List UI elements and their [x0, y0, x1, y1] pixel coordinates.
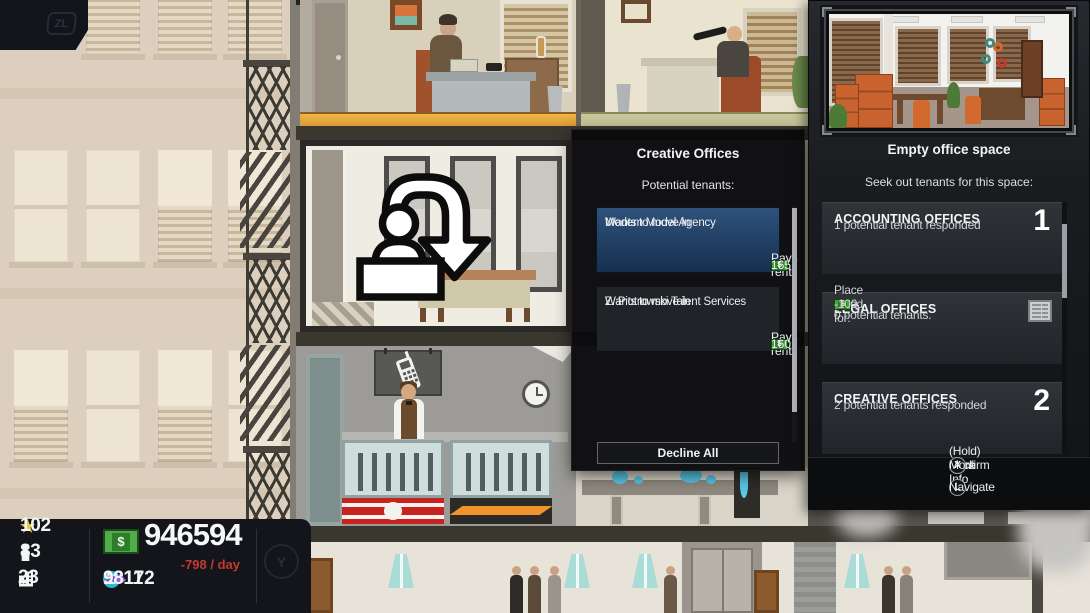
newspaper-ad-icon: [1028, 300, 1052, 322]
wall-art: [621, 0, 651, 23]
desk: [979, 88, 1025, 120]
fire-escape-lattice: [246, 452, 293, 520]
rent-value: 165: [771, 258, 791, 272]
tall-tank: [734, 468, 760, 518]
lobby-person: [528, 575, 541, 613]
wall-sconce: [564, 554, 590, 588]
elevator-doors: [691, 548, 753, 613]
game-screen: Creative Offices Potential tenants: Mode…: [0, 0, 1090, 613]
textured-wall: [794, 542, 836, 613]
desk-body: [647, 66, 719, 114]
counter-brand-red: [342, 498, 444, 524]
lobby-scene: [296, 542, 1090, 613]
water-splash: [634, 476, 643, 484]
wall-decor-ring: [985, 38, 995, 48]
office-type-description: 2 potential tenants responded: [834, 398, 986, 412]
store-door: [306, 354, 344, 526]
desk-leg: [897, 100, 903, 124]
buildings-value: 23: [18, 567, 39, 589]
desk-leg: [937, 100, 943, 124]
desk-leg: [506, 308, 512, 322]
worker-head: [727, 26, 742, 42]
facade-window: [14, 150, 68, 262]
plant: [792, 56, 808, 108]
responded-count: 2: [1033, 384, 1050, 418]
desk-leg: [524, 308, 530, 322]
typewriter: [450, 59, 478, 72]
plant: [947, 82, 960, 108]
office-door: [581, 0, 605, 118]
money-balance: 946594: [144, 517, 241, 553]
trash-can: [615, 84, 632, 114]
water-splash: [680, 468, 702, 483]
lobby-person: [900, 575, 913, 613]
move-in-tenant-icon: [348, 162, 498, 312]
fire-escape-lattice: [246, 66, 293, 150]
display-case: [342, 440, 444, 498]
lobby-door: [754, 570, 779, 613]
drafting-desk: [641, 58, 725, 66]
lobby-door: [308, 558, 333, 613]
facade-window: [86, 350, 140, 462]
office-scene-draftsman: [576, 0, 808, 128]
water-splash: [706, 475, 716, 484]
hint-label: Navigate: [949, 480, 995, 494]
facade-window: [86, 150, 140, 262]
bottle: [536, 36, 546, 58]
decline-all-button[interactable]: Decline All: [597, 442, 779, 464]
elevator: [682, 542, 762, 613]
ad-cost: -100: [834, 297, 857, 311]
aquarium-shop-scene: [576, 468, 808, 526]
empty-office-space-floor[interactable]: [300, 140, 572, 332]
divider: [89, 529, 90, 603]
room-window: [928, 512, 984, 524]
facade-window: [86, 0, 140, 54]
office-type-creative[interactable]: CREATIVE OFFICES 2 2 potential tenants r…: [822, 382, 1062, 454]
clerk-vest: [401, 399, 417, 439]
clerk-head: [401, 384, 416, 400]
lobby-person: [510, 575, 523, 613]
panel-title: Creative Offices: [572, 146, 804, 161]
facade-window: [158, 150, 212, 262]
water-splash: [612, 470, 628, 484]
wall-decor-ring: [981, 54, 991, 64]
office-type-accounting[interactable]: ACCOUNTING OFFICES 1 1 potential tenant …: [822, 202, 1062, 274]
floor-slab: [296, 526, 1090, 542]
worker-body: [717, 41, 749, 77]
wall-clock: [522, 380, 550, 408]
y-button-hint[interactable]: Y: [264, 544, 299, 579]
stats-hud: ★ 102 83 23 $ 946594 -798 / day: [0, 519, 311, 613]
tenant-list-panel: Creative Offices Potential tenants: Mode…: [572, 130, 804, 470]
space-panel-title: Empty office space: [808, 142, 1090, 157]
phone-store-scene: [296, 346, 576, 526]
ceiling-light: [1015, 16, 1045, 23]
wall-sconce: [632, 554, 658, 588]
divider: [256, 529, 257, 603]
counter-brand-bolt: [450, 498, 552, 524]
facade-window: [14, 350, 68, 462]
rent-value: 160: [771, 337, 791, 351]
desk: [426, 72, 536, 81]
office-door: [1021, 40, 1043, 98]
office-type-description: 1 potential tenant responded: [834, 218, 981, 232]
space-preview-frame: [824, 9, 1074, 133]
controller-hints-bar: A Confirm B Back X (Hold) More Info L Na…: [808, 458, 1090, 510]
counter-leg: [610, 495, 623, 526]
facade-window: [158, 350, 212, 462]
display-case: [450, 440, 552, 498]
fire-escape-stairs: [240, 152, 296, 248]
office-door: [312, 0, 348, 118]
top-left-hud: ZL: [0, 0, 88, 50]
telephone: [486, 63, 502, 71]
zl-shoulder-button[interactable]: ZL: [46, 12, 77, 35]
lobby-person: [882, 575, 895, 613]
scrollbar-thumb[interactable]: [1062, 224, 1067, 298]
wall-sconce: [388, 554, 414, 588]
facade-window: [228, 0, 282, 54]
bow-tie: [406, 401, 412, 405]
tenant-status: Wants to move in: [605, 294, 690, 311]
interior-wall: [312, 150, 346, 326]
fire-escape-lattice: [246, 259, 293, 343]
wall-decor-ring: [997, 58, 1007, 68]
facade-window: [158, 0, 212, 54]
money-icon-large: $: [103, 529, 139, 554]
space-panel-subtitle: Seek out tenants for this space:: [808, 175, 1090, 189]
lobby-person: [664, 575, 677, 613]
desk-lamp: [693, 26, 728, 41]
counter-leg: [698, 495, 711, 526]
hallway-strip: [300, 0, 312, 128]
population-value: 83: [20, 541, 41, 563]
office-type-legal[interactable]: LEGAL OFFICES 0 potential tenants. Place…: [822, 292, 1062, 364]
ceiling-light: [951, 16, 983, 23]
wall-art: [390, 0, 422, 30]
office-chair: [965, 96, 981, 124]
scrollbar-thumb[interactable]: [792, 208, 797, 412]
wall-sconce: [844, 554, 870, 588]
store-clerk: [392, 384, 426, 442]
responded-count: 1: [1033, 204, 1050, 238]
panel-subtitle: Potential tenants:: [572, 178, 804, 192]
office-scene-secretary: [300, 0, 576, 128]
empty-office-preview-art: [829, 14, 1069, 128]
worker-hair: [439, 14, 457, 25]
plant: [829, 104, 847, 128]
stars-value: 102: [20, 515, 51, 537]
tenant-card[interactable]: Z. Piotrowski Talent Services Wants to m…: [597, 287, 779, 351]
tenant-card-selected[interactable]: Modern Model Agency Wants to move in Pay…: [597, 208, 779, 272]
contacts-value: 9811: [103, 568, 143, 590]
ceiling-light: [532, 346, 576, 362]
filing-cabinet: [855, 74, 893, 128]
empty-space-panel: Empty office space Seek out tenants for …: [808, 0, 1090, 510]
fire-escape-stairs: [240, 345, 296, 441]
office-chair: [913, 100, 930, 128]
elevator-cab-blur: [944, 542, 1032, 580]
lobby-person: [548, 575, 561, 613]
window-blinds: [895, 26, 941, 86]
tenant-status: Wants to move in: [605, 215, 690, 232]
